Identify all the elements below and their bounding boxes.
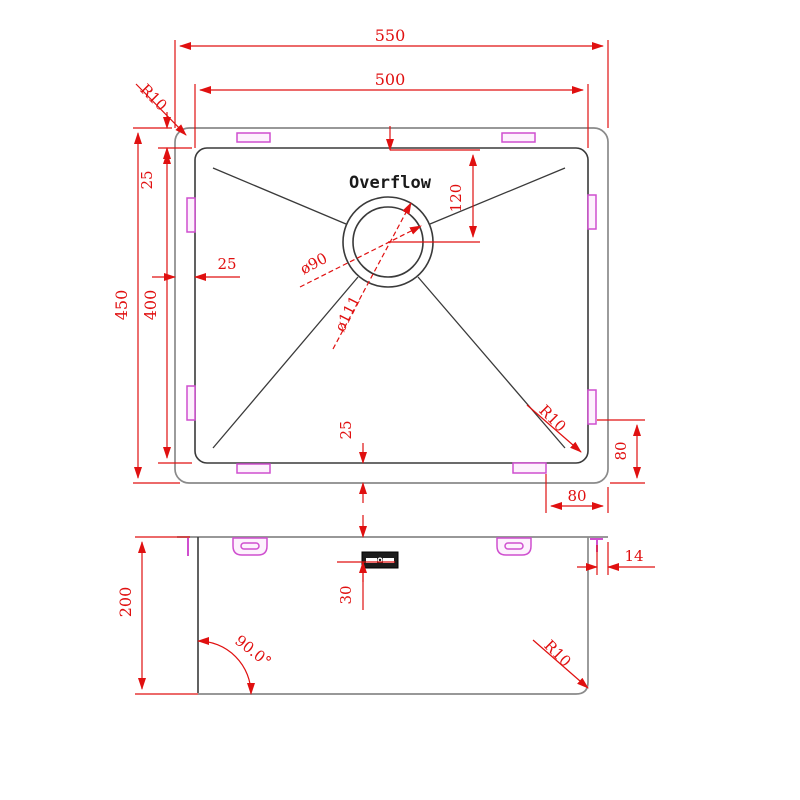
overflow-fitting	[362, 552, 398, 568]
mounting-clip-side	[233, 538, 267, 555]
mounting-clip	[187, 198, 195, 232]
dim-height: 200	[116, 537, 198, 694]
dim-corner-radius-outer: R10	[136, 80, 186, 135]
dim-text-14: 14	[624, 547, 643, 565]
mounting-clip	[513, 463, 546, 473]
mounting-clip	[502, 133, 535, 142]
dim-text-angle: 90.0°	[231, 631, 274, 670]
mounting-clip	[187, 386, 195, 420]
crease-top-left	[213, 168, 346, 224]
dim-rim-left: 25	[152, 255, 240, 277]
dim-overflow-from-top: 30	[337, 515, 395, 610]
dim-text-25-bottom: 25	[337, 420, 355, 439]
dim-text-r10-side: R10	[540, 636, 574, 670]
dim-drain-diameter: ø90	[297, 226, 421, 287]
mounting-clip	[237, 133, 270, 142]
dim-wall-angle: 90.0°	[198, 631, 275, 694]
mounting-clip-side	[497, 538, 531, 555]
dim-text-25-left: 25	[217, 255, 236, 273]
dim-text-30: 30	[337, 585, 355, 604]
mounting-clip	[588, 390, 596, 424]
dim-text-80-h: 80	[567, 487, 586, 505]
dim-clip-from-bottom: 80	[597, 420, 645, 483]
dim-text-25-top: 25	[138, 170, 156, 189]
dim-text-80-v: 80	[612, 441, 630, 460]
dim-text-500: 500	[375, 70, 406, 89]
dim-text-d111: ø111	[331, 293, 364, 335]
dim-text-200: 200	[116, 587, 135, 618]
mounting-clip	[237, 464, 270, 473]
dim-rim-top: 25	[138, 112, 167, 190]
top-view: 550 500 450 400 25	[112, 26, 645, 513]
dim-text-400: 400	[141, 290, 160, 321]
dim-text-550: 550	[375, 26, 406, 45]
dim-corner-radius-inner: R10	[527, 401, 581, 452]
overflow-label: Overflow	[349, 173, 432, 193]
sink-bowl-opening	[195, 148, 588, 463]
mounting-clip	[588, 195, 596, 229]
crease-bottom-right	[418, 277, 565, 448]
dim-bowl-depth: 400	[141, 148, 192, 463]
dim-text-450: 450	[112, 290, 131, 321]
dim-text-r10-br: R10	[535, 401, 569, 435]
dim-text-r10-tl: R10	[136, 80, 170, 114]
dim-corner-radius-side: R10	[533, 636, 588, 688]
sink-drawing-svg: 550 500 450 400 25	[0, 0, 800, 800]
dim-text-120: 120	[447, 184, 465, 213]
drawing-canvas: 550 500 450 400 25	[0, 0, 800, 800]
dim-rim-bottom: 25	[337, 420, 363, 503]
side-view: 200 30 14 90.0° R10	[116, 515, 655, 694]
dim-clip-from-right: 80	[546, 474, 608, 513]
